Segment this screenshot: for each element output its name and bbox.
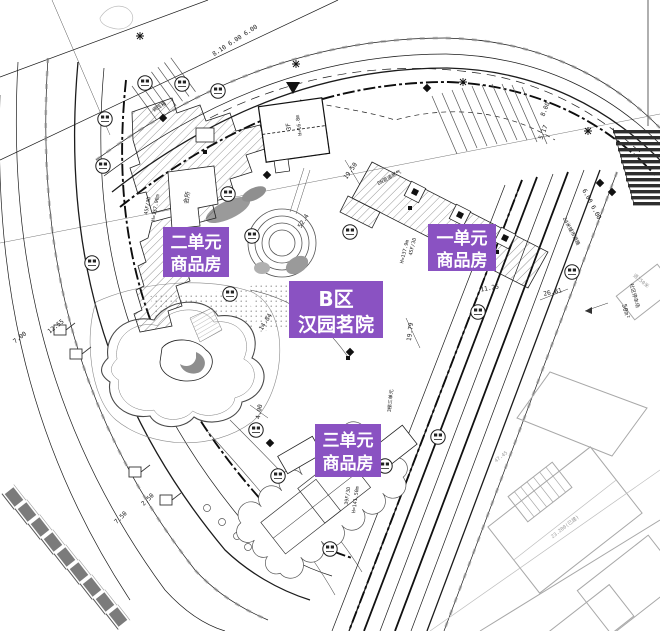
label-unit2-line2: 商品房 — [171, 254, 222, 275]
site-plan-drawing: 3F H=16.8m — [0, 0, 660, 631]
label-unit1-line1: 一单元 — [437, 228, 488, 249]
road-class-note: 24米城市道路 — [561, 216, 582, 247]
dim-8-00: 8.00 — [540, 101, 552, 118]
dim-47-45: 47.45 — [494, 450, 510, 464]
label-unit3-line2: 商品房 — [323, 453, 374, 474]
pond — [90, 282, 298, 443]
label-unit2-line1: 二单元 — [171, 232, 222, 253]
clubhouse-floors-text: 3F — [285, 122, 293, 131]
parking-area-note: 社区停车场 — [628, 283, 641, 309]
label-unit3: 三单元 商品房 — [315, 424, 381, 477]
dim-2-50: 2.50 — [140, 492, 156, 508]
dim-19-79: 19.79 — [406, 322, 415, 342]
dim-52-4: 52.4 — [297, 213, 311, 230]
unit3-stair-note: 3梯三单元 — [386, 389, 395, 413]
zebra-crossing — [613, 130, 660, 205]
label-unit3-line1: 三单元 — [323, 430, 374, 451]
north-arrow-icon — [286, 82, 300, 94]
label-unit2: 二单元 商品房 — [163, 227, 229, 277]
label-unit1: 一单元 商品房 — [428, 224, 496, 271]
clubhouse-building: 3F H=16.8m — [258, 98, 331, 174]
dim-11-25: 11.25 — [480, 283, 500, 293]
label-zone-line1: B区 — [318, 287, 353, 311]
site-plan-svg: 3F H=16.8m — [0, 0, 660, 631]
label-zone-b: B区 汉园茗院 — [289, 281, 383, 338]
unit1-spec: 45F/3D — [408, 237, 418, 256]
label-zone-line2: 汉园茗院 — [298, 313, 374, 336]
parking-size-note: 50m² — [620, 304, 631, 320]
dim-4-00: 4.00 — [255, 404, 265, 420]
label-unit1-line2: 商品房 — [437, 250, 488, 271]
dim-19-50: 19.50 — [343, 161, 360, 180]
